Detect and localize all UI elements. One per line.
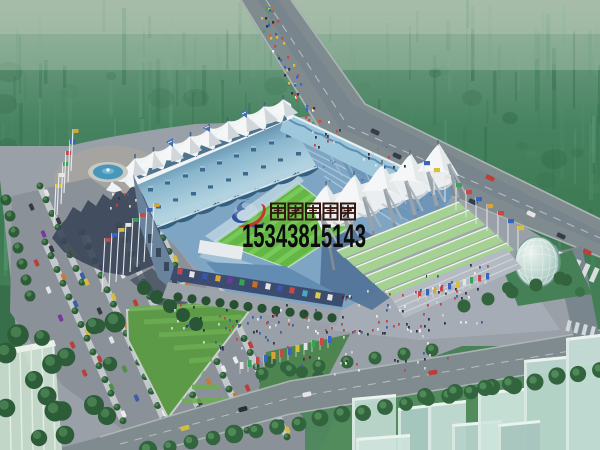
- svg-text:15343815143: 15343815143: [242, 218, 366, 254]
